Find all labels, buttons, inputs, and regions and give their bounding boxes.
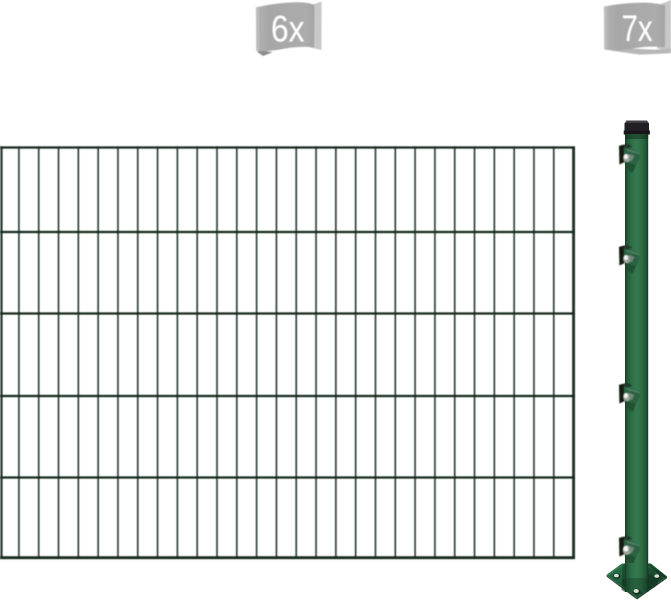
svg-text:7x: 7x <box>622 7 653 49</box>
svg-text:6x: 6x <box>271 7 305 49</box>
